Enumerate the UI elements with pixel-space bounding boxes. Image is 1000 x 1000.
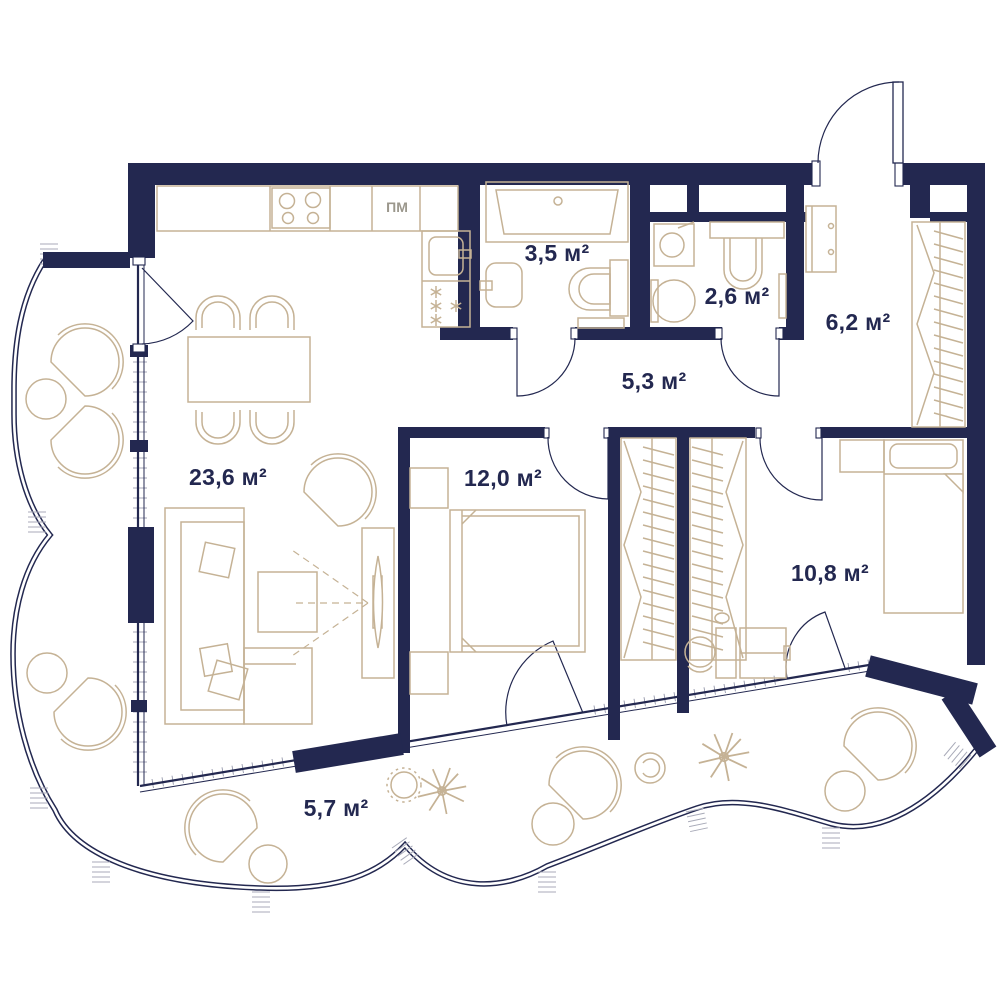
balcony-furniture (26, 324, 916, 883)
pillow-icon (200, 644, 232, 676)
wardrobe-icon (621, 438, 676, 660)
balcony-armchair-icon (51, 406, 123, 478)
armchair-icon (304, 454, 376, 526)
balcony-armchair-icon (51, 324, 123, 396)
wardrobe-icon (690, 438, 746, 660)
bedroom-balcony-door (506, 641, 583, 726)
plant-icon (418, 768, 466, 814)
living-room-furniture (165, 296, 394, 724)
toilet-icon (569, 260, 628, 316)
balcony-table-icon (26, 379, 66, 419)
dining-chair-icon (196, 296, 240, 330)
room-label-bedroom: 12,0 м² (464, 465, 542, 491)
balcony-table-icon (825, 771, 865, 811)
washbasin-icon (480, 263, 522, 307)
room-label-toilet: 2,6 м² (705, 283, 770, 309)
bedroom-2-balcony-door (786, 612, 845, 678)
kitchen-furniture (157, 186, 471, 327)
bedroom-furniture (410, 438, 676, 694)
coffee-table-icon (258, 572, 317, 632)
desk-icon (685, 613, 790, 678)
room-label-hall: 6,2 м² (826, 309, 891, 335)
corner-sink-icon (654, 222, 694, 266)
wardrobe-icon (912, 222, 965, 427)
balcony-door-left (133, 257, 193, 352)
bathroom-door (510, 328, 578, 396)
towel-rail-icon (779, 274, 786, 318)
balcony-armchair-icon (844, 708, 916, 780)
tv-icon (374, 556, 383, 648)
balcony-table-icon (532, 803, 574, 845)
kitchen-counter (157, 186, 458, 231)
nightstand-icon (410, 652, 448, 694)
bedroom-2-door (756, 428, 822, 500)
bedroom-2-furniture (685, 438, 963, 678)
toilet-door (715, 328, 783, 396)
balcony-armchair-icon (185, 790, 257, 862)
room-label-bathroom: 3,5 м² (525, 240, 590, 266)
double-bed-icon (450, 510, 585, 652)
dresser-icon (806, 206, 836, 272)
entrance-door (812, 82, 903, 186)
plant-icon (699, 733, 749, 781)
lamp-icon (715, 613, 729, 623)
room-label-living: 23,6 м² (189, 464, 267, 490)
dining-chair-icon (250, 296, 294, 330)
nightstand-icon (410, 468, 448, 508)
stove-icon (272, 188, 330, 228)
pillow-icon (890, 444, 957, 468)
bedroom-door (544, 428, 609, 499)
washing-machine-icon (651, 280, 695, 322)
single-bed-icon (884, 440, 963, 613)
nightstand-icon (840, 440, 884, 472)
bath-mat-icon (578, 318, 624, 328)
plant-icon (387, 768, 421, 802)
balcony-stool-icon (249, 845, 287, 883)
toilet-icon (710, 222, 784, 289)
balcony-table-icon (27, 653, 67, 693)
pillow-icon (208, 660, 248, 700)
pillow-icon (199, 542, 235, 578)
room-label-bedroom-2: 10,8 м² (791, 560, 869, 586)
bathtub-icon (486, 182, 628, 242)
dining-chair-icon (250, 410, 294, 444)
balcony-armchair-icon (549, 747, 621, 819)
dining-table-icon (188, 337, 310, 402)
room-label-balcony: 5,7 м² (304, 795, 369, 821)
room-label-corridor: 5,3 м² (622, 368, 687, 394)
walls (43, 163, 988, 762)
sofa-icon (165, 508, 312, 724)
plant-icon (635, 753, 665, 783)
dishwasher-label: ПМ (386, 199, 408, 215)
tv-stand-icon (292, 528, 394, 678)
dining-chair-icon (196, 410, 240, 444)
balcony-armchair-icon (54, 678, 126, 750)
floor-plan: 23,6 м² 3,5 м² 2,6 м² 6,2 м² 5,3 м² 12,0… (0, 0, 1000, 1000)
